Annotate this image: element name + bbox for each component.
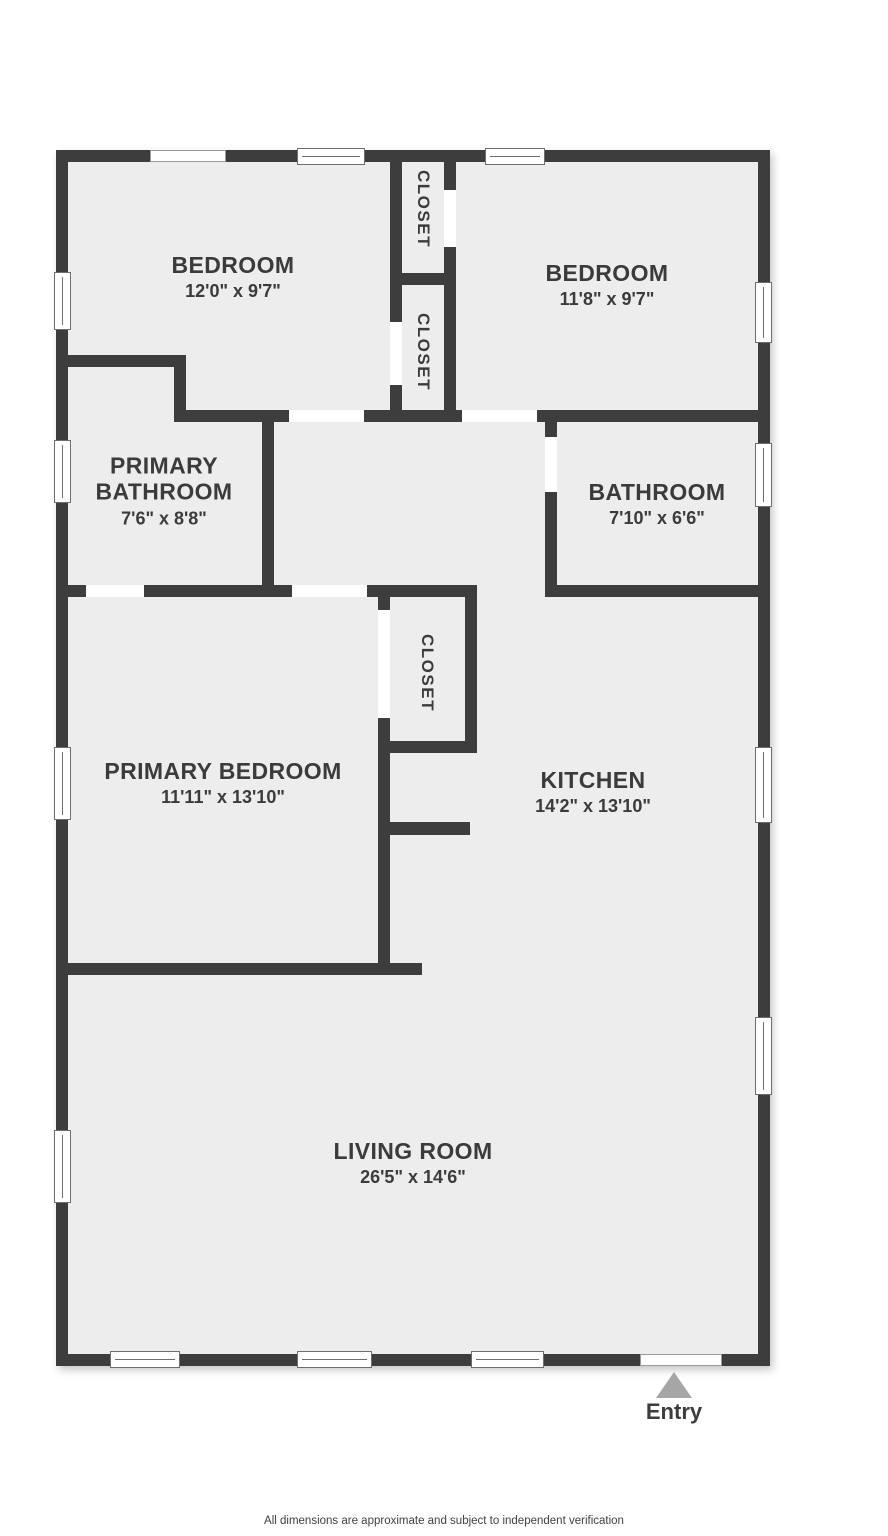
- room-dims: 26'5" x 14'6": [333, 1167, 492, 1188]
- room-name: BEDROOM: [172, 252, 295, 278]
- room-dims: 12'0" x 9'7": [172, 281, 295, 302]
- window: [755, 747, 772, 823]
- room-name: LIVING ROOM: [333, 1138, 492, 1164]
- wall-segment: [367, 585, 477, 597]
- room-dims: 7'10" x 6'6": [589, 508, 726, 529]
- room-name: PRIMARY BEDROOM: [104, 758, 341, 784]
- wall-segment: [537, 410, 758, 422]
- room-dims: 11'11" x 13'10": [104, 787, 341, 808]
- door-opening: [86, 585, 144, 597]
- wall-segment: [56, 963, 422, 975]
- room-label-primary-bedroom: PRIMARY BEDROOM 11'11" x 13'10": [104, 758, 341, 808]
- window: [755, 282, 772, 343]
- wall-segment: [390, 273, 456, 285]
- closet-label-kitchen: CLOSET: [417, 634, 437, 712]
- window: [297, 1351, 372, 1368]
- room-label-primary-bathroom: PRIMARY BATHROOM 7'6" x 8'8": [89, 453, 239, 530]
- floor-plan: BEDROOM 12'0" x 9'7" BEDROOM 11'8" x 9'7…: [0, 0, 888, 1536]
- wall-segment: [378, 822, 470, 835]
- window: [755, 1017, 772, 1095]
- wall-segment: [545, 410, 557, 437]
- room-dims: 14'2" x 13'10": [535, 796, 651, 817]
- door-opening: [378, 610, 390, 718]
- wall-segment: [465, 597, 477, 753]
- room-dims: 7'6" x 8'8": [89, 508, 239, 529]
- window: [485, 148, 545, 165]
- wall-segment: [56, 355, 186, 367]
- room-name: PRIMARY BATHROOM: [89, 453, 239, 506]
- room-label-living-room: LIVING ROOM 26'5" x 14'6": [333, 1138, 492, 1188]
- window: [110, 1351, 180, 1368]
- door-opening: [462, 410, 537, 422]
- window: [297, 148, 365, 165]
- door-opening: [545, 437, 557, 492]
- entry-door-opening: [640, 1354, 722, 1366]
- closet-label-top: CLOSET: [413, 170, 433, 248]
- entry-arrow-icon: [656, 1372, 692, 1398]
- window: [54, 440, 71, 503]
- room-name: BEDROOM: [546, 260, 669, 286]
- closet-label-middle: CLOSET: [413, 313, 433, 391]
- wall-segment: [364, 410, 462, 422]
- window: [54, 272, 71, 330]
- window: [54, 747, 71, 820]
- disclaimer-text: All dimensions are approximate and subje…: [0, 1515, 888, 1527]
- wall-segment: [378, 741, 477, 753]
- window: [471, 1351, 544, 1368]
- window: [54, 1130, 71, 1203]
- room-label-kitchen: KITCHEN 14'2" x 13'10": [535, 767, 651, 817]
- door-opening: [289, 410, 364, 422]
- room-label-bedroom-1: BEDROOM 12'0" x 9'7": [172, 252, 295, 302]
- entry-label: Entry: [646, 1399, 702, 1425]
- window: [755, 443, 772, 507]
- window-opening: [150, 150, 226, 162]
- door-opening: [292, 585, 367, 597]
- room-dims: 11'8" x 9'7": [546, 289, 669, 310]
- wall-segment: [378, 718, 390, 975]
- wall-segment: [262, 410, 274, 597]
- room-label-bathroom: BATHROOM 7'10" x 6'6": [589, 479, 726, 529]
- wall-segment: [56, 585, 86, 597]
- wall-segment: [545, 492, 557, 597]
- room-label-bedroom-2: BEDROOM 11'8" x 9'7": [546, 260, 669, 310]
- wall-segment: [144, 585, 292, 597]
- wall-segment: [174, 355, 186, 422]
- wall-segment: [444, 162, 456, 190]
- wall-segment: [378, 597, 390, 610]
- room-name: BATHROOM: [589, 479, 726, 505]
- door-opening: [444, 190, 456, 247]
- room-name: KITCHEN: [535, 767, 651, 793]
- wall-segment: [545, 585, 758, 597]
- wall-segment: [390, 162, 402, 322]
- door-opening: [390, 322, 402, 385]
